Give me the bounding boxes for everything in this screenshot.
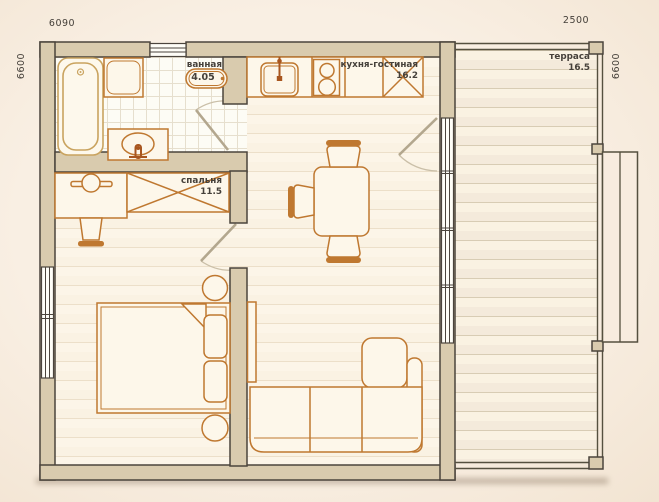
dim-terrace-top: 2500 (552, 16, 600, 27)
bedroom-door (201, 224, 236, 270)
window-top (150, 44, 186, 57)
pillow (204, 361, 227, 402)
terrace-post-top-right (589, 42, 603, 54)
label-kitchen-living-name: кухня-гостиная (331, 60, 418, 71)
dining-table (314, 167, 369, 236)
bathtub (58, 58, 103, 155)
terrace-frame (455, 42, 638, 469)
desk-chair (78, 218, 104, 247)
desk (55, 173, 127, 218)
label-kitchen-living-area: 16.2 (331, 71, 418, 82)
sofa-seat (250, 387, 422, 452)
label-bedroom-area: 11.5 (150, 187, 222, 198)
dim-right: 6600 (612, 36, 624, 96)
wall-top-left (40, 42, 150, 57)
wall-bedroom-right-lower (230, 268, 247, 466)
terrace-door (399, 118, 437, 171)
nightstand-bottom (202, 415, 228, 441)
dim-left: 6600 (17, 36, 29, 96)
wall-top-right (186, 42, 455, 57)
terrace-steps (603, 152, 638, 342)
pillow (204, 315, 227, 358)
vanity-sink (108, 129, 168, 160)
terrace-post-bottom-right (589, 457, 603, 469)
wall-left (40, 42, 55, 480)
washing-machine (104, 58, 143, 97)
label-terrace-area: 16.5 (508, 63, 590, 74)
wall-bedroom-right-upper (230, 171, 247, 223)
label-bathroom: ванная (160, 60, 222, 71)
floor-plan: 6090 2500 6600 6600 ванная 4.05 кухня-го… (0, 0, 659, 502)
kitchen-sink (261, 57, 298, 96)
label-bedroom: спальня 11.5 (150, 176, 222, 197)
bathroom-door (196, 101, 228, 150)
label-bathroom-area: 4.05 (186, 73, 220, 84)
nightstand-top (203, 276, 228, 301)
bed (97, 303, 230, 413)
window-left (42, 267, 54, 378)
terrace-post-mid-lower (592, 341, 603, 351)
dim-top: 6090 (38, 19, 86, 30)
tv (248, 302, 257, 382)
dining-chair-top (326, 140, 361, 167)
label-bedroom-name: спальня (150, 176, 222, 187)
wall-bottom (40, 465, 455, 480)
terrace-post-mid-upper (592, 144, 603, 154)
window-wall-right-glazing (442, 118, 454, 343)
dining-chair-left (288, 185, 314, 218)
sofa (250, 338, 422, 452)
label-terrace-name: терраса (508, 52, 590, 63)
dining-chair-bottom (326, 236, 361, 263)
label-kitchen-living: кухня-гостиная 16.2 (331, 60, 418, 81)
floor-plan-drawing (0, 0, 659, 502)
sofa-chaise (362, 338, 407, 388)
label-terrace: терраса 16.5 (508, 52, 590, 73)
